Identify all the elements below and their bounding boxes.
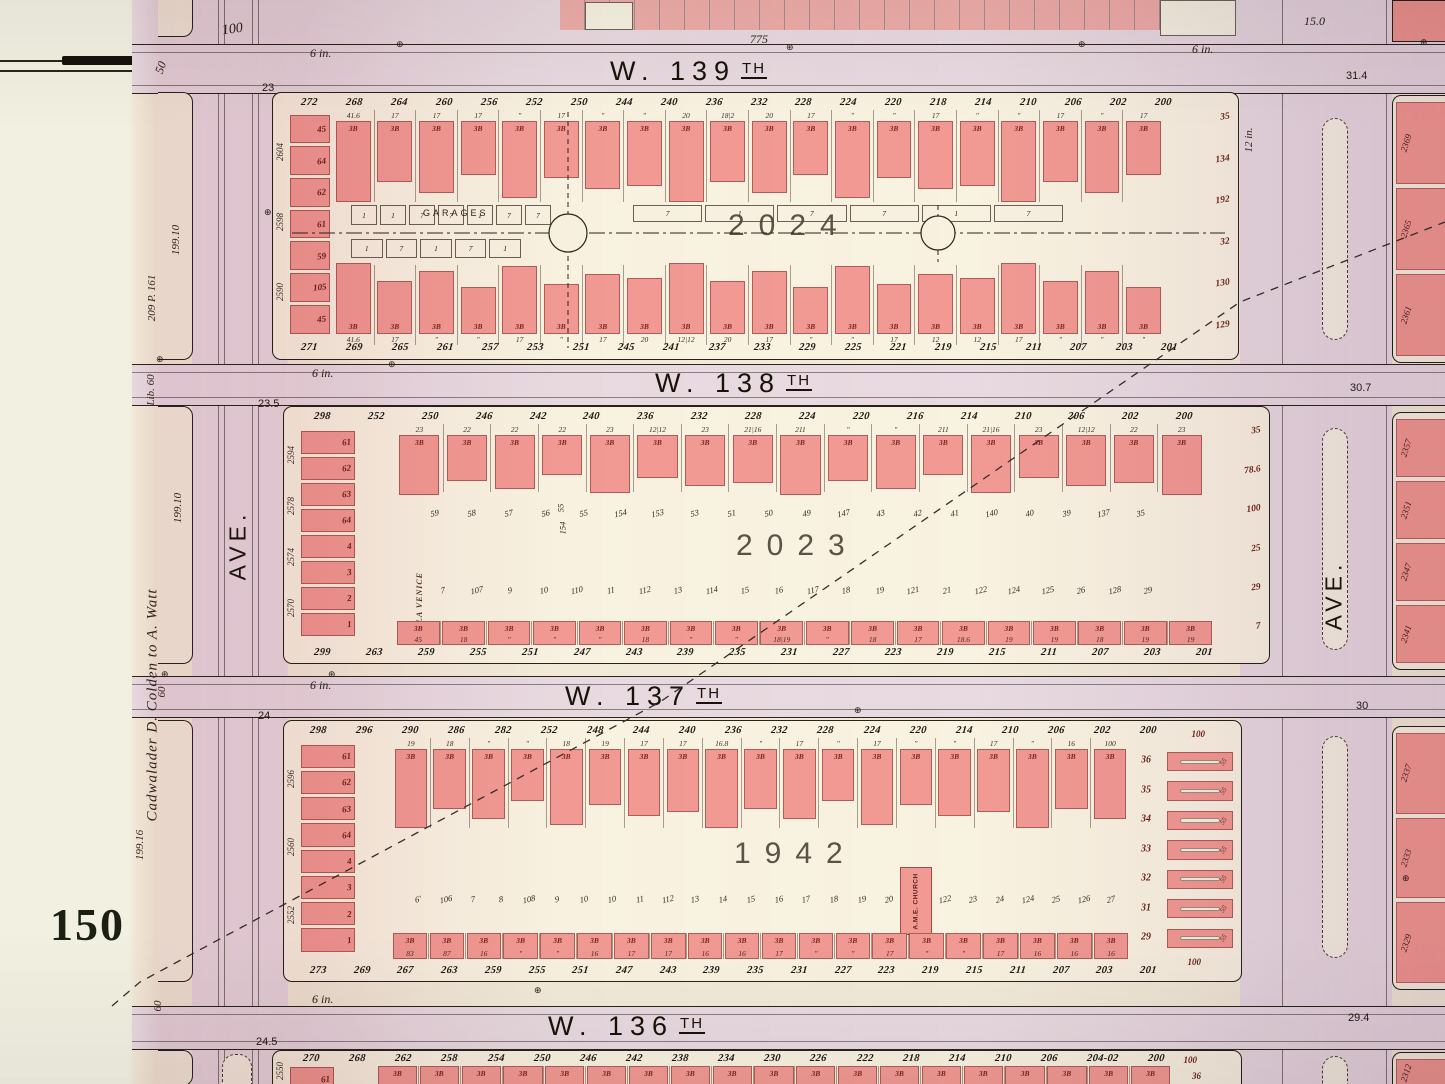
lot-number: 107 — [459, 581, 493, 599]
building-type: 3B — [378, 124, 411, 133]
building: 3B — [793, 287, 828, 334]
lot: 4 — [301, 850, 355, 873]
street-w136 — [132, 1006, 1445, 1050]
lot-cell: 173B — [895, 621, 940, 645]
address-number: 254 — [487, 1053, 505, 1065]
frontage-number: ″ — [957, 111, 998, 120]
building-type: 3B — [807, 624, 848, 633]
lot: 3355 — [1137, 837, 1235, 862]
survey-mark-icon: ⊕ — [156, 355, 164, 365]
frontage-number: 16 — [1052, 739, 1090, 748]
building-type: 3B — [588, 1069, 625, 1078]
building-type: 3B — [984, 936, 1017, 945]
building-type: 3B — [1125, 624, 1166, 633]
lot-number: 55 — [564, 504, 602, 523]
lot-number: 112 — [627, 581, 661, 599]
frontage-number: 20 — [624, 335, 665, 344]
lot: 45 — [290, 115, 330, 144]
frontage-number: 18 — [1078, 635, 1122, 644]
building: 3B — [780, 435, 820, 495]
lot-number: 121 — [896, 581, 930, 599]
address-number: 240 — [583, 411, 601, 423]
address-number: 215 — [988, 647, 1006, 659]
address-number: 201 — [1195, 647, 1213, 659]
lot-cell: 183B — [430, 738, 469, 828]
address-number: 255 — [469, 647, 487, 659]
building: 3B — [710, 121, 745, 182]
avenue-line — [218, 0, 219, 1084]
frontage-number: ″ — [742, 739, 780, 748]
address-number: 298 — [313, 411, 331, 423]
parcel: 2333 — [1396, 818, 1445, 899]
address-number: 210 — [1020, 97, 1038, 109]
frontage-number: 16 — [1093, 949, 1129, 958]
lot-number: 50 — [750, 504, 788, 523]
address-number: 214 — [955, 725, 973, 737]
frontage-number: 100 — [1091, 739, 1129, 748]
building-type: 3B — [512, 752, 543, 761]
parcel-number: 2552 — [286, 910, 296, 924]
lot-cell: 193B — [1031, 621, 1076, 645]
address-number: 259 — [417, 647, 435, 659]
lot-cell: ″3B — [873, 110, 915, 202]
building-type: 3B — [711, 124, 744, 133]
lot-number: 17 — [792, 891, 821, 908]
frontage-number: 17 — [983, 949, 1019, 958]
lot-cell: 163B — [576, 933, 613, 959]
parcel-number: 2604 — [275, 147, 285, 161]
lot-cell: 16.83B — [1004, 1066, 1046, 1084]
lot: 62 — [301, 771, 355, 794]
building-type: 3B — [919, 124, 952, 133]
frontage-number: 17 — [375, 111, 416, 120]
lot-number: 4 — [346, 856, 352, 866]
lot-cell: 163B — [1092, 933, 1129, 959]
lot-number: 130 — [1178, 278, 1231, 295]
frontage-number: 17 — [874, 335, 915, 344]
building-type: 3B — [800, 936, 833, 945]
lot-strip-north: 233B223B223B223B233B12|123B233B21|163B21… — [396, 424, 1205, 492]
frontage-number: ″ — [624, 111, 665, 120]
building-type: 3B — [1115, 438, 1153, 447]
frontage-number: 17 — [975, 739, 1013, 748]
building: 3B — [1126, 287, 1161, 334]
lot-cell: ″3B — [623, 110, 665, 202]
block-stub — [158, 0, 193, 37]
lot-number: 126 — [1069, 891, 1098, 908]
address-row-north: 2982522502462422402362322282242202162142… — [314, 411, 1193, 423]
block-number: 1942 — [734, 837, 857, 871]
lot-cell: ″3B — [956, 110, 998, 202]
building: 3B — [752, 121, 787, 193]
lot-cell: 16.83B — [702, 738, 741, 828]
block-partial-east: 236923652361 — [1392, 95, 1445, 363]
frontage-number: ″ — [532, 635, 576, 644]
address-number: 227 — [834, 965, 852, 977]
lot-cell: ″3B — [836, 1066, 878, 1084]
building: 3B — [627, 278, 662, 334]
lot-number: 2 — [346, 593, 352, 603]
lot-cell: 163B — [1018, 933, 1055, 959]
building-type: 3B — [420, 322, 453, 331]
lot-cell: 173B — [857, 738, 896, 828]
mid-lot-row: 5958575655154153535150491474342411404039… — [416, 495, 1159, 531]
parcel: 2351 — [1396, 481, 1445, 539]
parcel-dimension: 60 — [156, 687, 168, 698]
lot-number: 62 — [317, 187, 327, 198]
parcel: 2347 — [1396, 543, 1445, 601]
building-type: 3B — [745, 752, 776, 761]
lot-cell: ″3B — [669, 1066, 711, 1084]
address-number: 206 — [1068, 411, 1086, 423]
building-type: 3B — [546, 1069, 583, 1078]
frontage-number: 21|16 — [729, 425, 776, 434]
lot: 2955 — [1137, 926, 1235, 951]
lot-number: 51 — [713, 504, 751, 523]
frontage-number: ″ — [999, 111, 1040, 120]
lot-number: 45 — [317, 314, 327, 325]
frontage-number: ″ — [832, 111, 873, 120]
parcel-number: 2341 — [1398, 624, 1413, 644]
lot-cell: 173B — [1122, 110, 1164, 202]
building-type: 3B — [379, 1069, 416, 1078]
lot-number: 125 — [1030, 581, 1064, 599]
lot-number: 62 — [342, 463, 352, 474]
frontage-number: ″ — [936, 739, 974, 748]
lot-cell: ″3B — [908, 933, 945, 959]
frontage-number: 16 — [1056, 949, 1092, 958]
street-name-w137: W. 137TH — [565, 681, 722, 712]
building-type: 3B — [1132, 1069, 1169, 1078]
address-number: 264 — [390, 97, 408, 109]
building-type: 3B — [923, 1069, 960, 1078]
lot-number: 4 — [346, 541, 352, 551]
lot-cell: ″3B — [804, 621, 849, 645]
building-type: 3B — [398, 624, 439, 633]
lot: 1 — [301, 928, 355, 951]
court-notch: 1 — [922, 205, 991, 222]
lot-number: 32 — [1178, 236, 1231, 253]
building-type: 3B — [1020, 438, 1058, 447]
lot-cell: ″3B — [831, 110, 873, 202]
street-opening-width: 15.0 — [1304, 14, 1325, 29]
lot-cell: 173B — [790, 110, 832, 202]
east-lot-numbers: 3578.610025297 — [1205, 429, 1261, 635]
garage-row: 17171 — [351, 239, 521, 258]
lot-number: 57 — [490, 504, 528, 523]
address-number: 232 — [691, 411, 709, 423]
address-number: 202 — [1122, 411, 1140, 423]
building-type: 3B — [881, 1069, 918, 1078]
building: 3B — [667, 749, 700, 812]
frontage-number: 17 — [749, 335, 790, 344]
lot-width-label: 100 — [1184, 1055, 1198, 1065]
lot-cell: 173B — [624, 738, 663, 828]
lot-number: 108 — [514, 891, 543, 908]
avenue-line — [1282, 0, 1283, 1084]
frontage-number: 19 — [1168, 635, 1212, 644]
building: 3B — [395, 749, 428, 828]
frontage-number: 20 — [707, 335, 748, 344]
building-type: 3B — [534, 624, 575, 633]
street-half-width: 30 — [1356, 700, 1368, 712]
building-type: 3B — [671, 624, 712, 633]
street-half-width: 30.7 — [1350, 382, 1371, 394]
lot: 63 — [301, 483, 355, 506]
building-type: 3B — [545, 124, 578, 133]
address-number: 259 — [484, 965, 502, 977]
building-type: 3B — [1006, 1069, 1043, 1078]
lot-cell: 16.03B — [418, 1066, 460, 1084]
frontage-number: 16.8 — [703, 739, 741, 748]
lot-cell: ″3B — [486, 621, 531, 645]
west-parcel-numbers: 2594257825742570 — [284, 431, 298, 635]
building-type: 3B — [545, 322, 578, 331]
frontage-number: ″ — [499, 111, 540, 120]
building-type: 3B — [672, 1069, 709, 1078]
building-type: 3B — [873, 936, 906, 945]
address-number: 250 — [421, 411, 439, 423]
lot: 3455 — [1137, 808, 1235, 833]
building-type: 3B — [1058, 936, 1091, 945]
address-number: 290 — [402, 725, 420, 737]
lot-number: 19 — [862, 581, 896, 599]
parcel-number: 2351 — [1398, 500, 1413, 520]
building-type: 3B — [1048, 1069, 1085, 1078]
depth-label: 154 — [557, 522, 567, 535]
frontage-number: ″ — [835, 949, 871, 958]
building-type: 3B — [989, 624, 1030, 633]
address-number: 211 — [1040, 647, 1057, 659]
lot-cell: 833B — [392, 933, 428, 959]
ame-church-building: A.M.E. CHURCH — [900, 867, 932, 935]
address-number: 296 — [355, 725, 373, 737]
building: 3B — [822, 749, 855, 801]
building-type: 3B — [878, 124, 911, 133]
building-type: 3B — [668, 752, 699, 761]
building-type: 3B — [1079, 624, 1120, 633]
building: 3B — [835, 121, 870, 198]
parcel: 2361 — [1396, 274, 1445, 356]
frontage-number: ″ — [509, 739, 547, 748]
building-type: 3B — [878, 322, 911, 331]
building-type: 3B — [852, 624, 893, 633]
lot-number: 58 — [453, 504, 491, 523]
lot-number: 128 — [1098, 581, 1132, 599]
building: 3B — [669, 263, 704, 334]
address-number: 244 — [632, 725, 650, 737]
survey-mark-icon: ⊕ — [534, 986, 542, 996]
frontage-number: 18|2 — [707, 111, 748, 120]
building-type: 3B — [763, 936, 796, 945]
depth-label: 55 — [555, 504, 565, 513]
building-type: 3B — [1163, 438, 1201, 447]
frontage-number: 17 — [541, 111, 582, 120]
lot-cell: 173B — [415, 110, 457, 202]
building-type: 3B — [615, 936, 648, 945]
lot-number: 35 — [1205, 425, 1262, 443]
address-number: 243 — [625, 647, 643, 659]
east-lot-numbers: 3513419232130129 — [1178, 115, 1230, 333]
building-type: 3B — [755, 1069, 792, 1078]
address-number: 255 — [528, 965, 546, 977]
parcel-number: 2312 — [1398, 1063, 1413, 1083]
street-name-w138: W. 138TH — [655, 368, 812, 399]
address-number: 223 — [878, 965, 896, 977]
lot-number: 25 — [1205, 543, 1262, 561]
address-number: 246 — [475, 411, 493, 423]
avenue-name-west: AVE. — [225, 510, 252, 581]
building-type: 3B — [978, 752, 1009, 761]
lot-cell: 41.63B — [333, 110, 374, 202]
frontage-number: 18 — [441, 635, 485, 644]
frontage-number: ″ — [825, 425, 872, 434]
lot-width-label: 100 — [1192, 729, 1206, 739]
lot-number: 106 — [431, 891, 460, 908]
lot: 61 — [301, 431, 355, 454]
building: 3B — [1066, 435, 1106, 486]
building-type: 3B — [910, 936, 943, 945]
garage-box: 1 — [351, 239, 383, 258]
lot-cell: 173B — [649, 933, 686, 959]
building-type: 3B — [943, 624, 984, 633]
building: 3B — [377, 281, 412, 334]
building-type: 3B — [939, 752, 970, 761]
building-type: 3B — [400, 438, 438, 447]
lot-number: 192 — [1178, 195, 1231, 212]
lot-cell: 173B — [873, 265, 915, 345]
building-type: 3B — [965, 1069, 1002, 1078]
lot-cell: 173B — [748, 265, 790, 345]
building-type: 3B — [1017, 752, 1048, 761]
building-type: 3B — [591, 438, 629, 447]
frontage-number: ″ — [1082, 335, 1123, 344]
west-lot-column: 456462615910545 — [287, 113, 333, 335]
garage-box: 1 — [420, 239, 452, 258]
survey-mark-icon: ⊕ — [328, 670, 336, 680]
frontage-number: 12|12 — [1063, 425, 1110, 434]
mid-lot-row: 7107910110111121311415161171819121211221… — [426, 561, 1165, 619]
lot-cell: ″3B — [498, 110, 540, 202]
building-type: 3B — [901, 752, 932, 761]
lot-cell: 17.63B — [502, 1066, 544, 1084]
frontage-number: ″ — [669, 635, 713, 644]
avenue-median — [1322, 736, 1348, 958]
frontage-number: 23 — [682, 425, 729, 434]
block-partial-east: 233723332329 — [1392, 726, 1445, 990]
address-number: 235 — [747, 965, 765, 977]
courtyard-box — [585, 2, 633, 30]
lot-cell: 16.83B — [794, 1066, 836, 1084]
building: 3B — [1001, 263, 1036, 334]
frontage-number: 22 — [1111, 425, 1158, 434]
address-number: 268 — [345, 97, 363, 109]
garage-box: 7 — [525, 205, 551, 225]
lot-cell: 17.63B — [753, 1066, 795, 1084]
lot-number: 3 — [346, 567, 352, 577]
lot-number: 42 — [899, 504, 937, 523]
frontage-number: 17 — [915, 111, 956, 120]
address-number: 258 — [441, 1053, 459, 1065]
block-stub — [158, 720, 193, 982]
frontage-number: ″ — [487, 635, 531, 644]
water-main-label: 6 in. — [1192, 42, 1213, 57]
address-number: 204-02 — [1086, 1053, 1119, 1065]
frontage-number: 12|12 — [634, 425, 681, 434]
address-number: 211 — [1009, 965, 1026, 977]
building-type: 3B — [1090, 1069, 1127, 1078]
address-number: 272 — [300, 97, 318, 109]
building-type: 3B — [947, 936, 980, 945]
lot-number: 9 — [542, 891, 571, 908]
lot-number: 15 — [736, 891, 765, 908]
building-type: 3B — [443, 624, 484, 633]
parcel-dimension: 199.10 — [170, 225, 182, 255]
building-type: 3B — [468, 936, 501, 945]
address-number: 207 — [1052, 965, 1070, 977]
lot-cell: 16.83B — [920, 1066, 962, 1084]
address-number: 298 — [309, 725, 327, 737]
frontage-number: 17 — [613, 949, 649, 958]
lot-cell: 173B — [982, 933, 1019, 959]
garage-box: 1 — [489, 239, 521, 258]
lot-cell: 223B — [538, 424, 586, 492]
building-type: 3B — [473, 752, 504, 761]
building: 3B — [1055, 749, 1088, 809]
survey-mark-icon: ⊕ — [854, 706, 862, 716]
address-number: 267 — [397, 965, 415, 977]
address-number: 256 — [480, 97, 498, 109]
building-type: 3B — [1086, 124, 1119, 133]
avenue-median — [222, 1054, 252, 1084]
lot-number: 10 — [598, 891, 627, 908]
building: 3B — [585, 121, 620, 189]
lot-number: 45 — [317, 123, 327, 134]
lot-cell: ″3B — [834, 933, 871, 959]
building-type: 3B — [586, 124, 619, 133]
lot-number: 114 — [694, 581, 728, 599]
building-type: 3B — [503, 124, 536, 133]
address-number: 218 — [902, 1053, 920, 1065]
lot-number: 11 — [594, 581, 628, 599]
building: 3B — [472, 749, 505, 819]
address-number: 218 — [930, 97, 948, 109]
building: 3B — [876, 435, 916, 489]
lot-number: 63 — [342, 803, 352, 814]
survey-mark-icon: ⊕ — [786, 43, 794, 53]
frontage-number: 19 — [586, 739, 624, 748]
lot-strip-north: 193B183B″3B″3B183B193B173B173B16.83B″3B1… — [392, 738, 1129, 828]
lot-number: 27 — [1097, 891, 1126, 908]
frontage-number: 23 — [1158, 425, 1205, 434]
address-number: 252 — [525, 97, 543, 109]
frontage-number: 17 — [625, 739, 663, 748]
block-stub — [158, 406, 193, 664]
building-type: 3B — [1086, 322, 1119, 331]
building-type: 3B — [877, 438, 915, 447]
corner-lot-box — [1160, 0, 1236, 36]
lot-number: 124 — [997, 581, 1031, 599]
building: 3B — [744, 749, 777, 809]
frontage-number: ″ — [1014, 739, 1052, 748]
frontage-number: 17 — [375, 335, 416, 344]
lot-number: 26 — [1064, 581, 1098, 599]
block-number: 2023 — [736, 529, 859, 563]
frontage-number: 20 — [749, 111, 790, 120]
address-row-north: 2702682622582542502462422382342302262222… — [303, 1053, 1165, 1065]
building: 3B — [938, 749, 971, 816]
court-notch: 7 — [994, 205, 1063, 222]
